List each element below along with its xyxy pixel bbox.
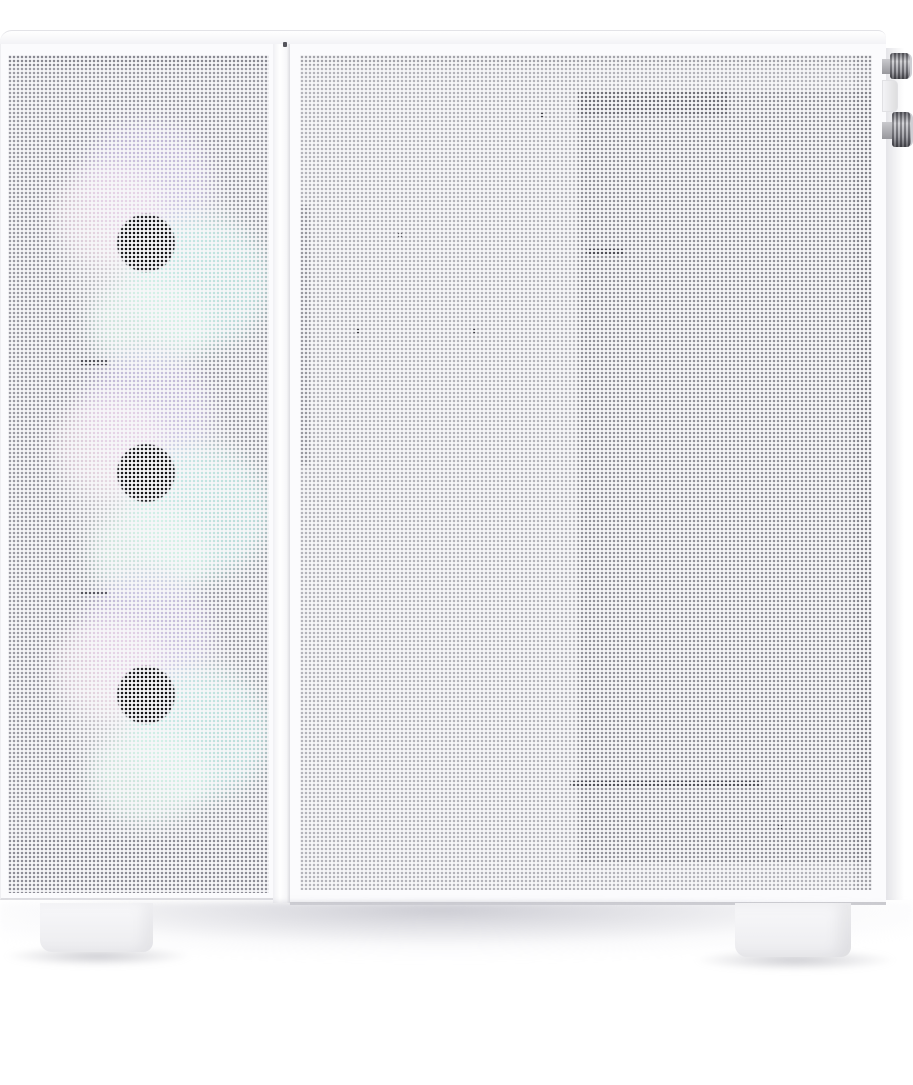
fan-glow-mint [88,506,210,602]
mesh-speck [473,329,477,333]
panel-latch-tab [882,80,898,112]
product-photo-white-mesh-pc-case [0,0,913,1085]
thumbscrew-lower [892,112,913,147]
rgb-fan-bottom [26,565,266,825]
side-mesh-grille [300,55,872,890]
fan-hub [117,214,175,272]
fan-glow-cyan [129,216,269,348]
case-foot-right [735,903,851,957]
mesh-edge-shading [8,838,269,893]
panel-seam-notch [283,42,287,47]
fan-hub [117,666,175,724]
fan-glow-lavender [81,121,213,241]
fan-glow-lavender [81,573,213,693]
interior-shelf-line [570,781,762,786]
mesh-speck [398,233,402,237]
mesh-edge-shading [300,205,310,465]
case-right-edge-shadow [886,48,904,900]
panel-seam [273,44,290,903]
thumbscrew-upper [890,53,912,79]
front-mesh-grille [8,55,269,893]
fan-glow-pink [54,395,166,495]
case-front-panel [0,44,273,900]
fan-glow-pink [54,165,166,265]
mesh-speck [586,249,624,254]
rgb-fan-top [26,113,266,373]
interior-shadow-edge [578,90,728,116]
fan-glow-mint [88,728,210,824]
fan-blade-halo [36,133,256,353]
mesh-speck [356,329,360,333]
fan-blade-halo [36,585,256,805]
fan-glow-mint [88,276,210,372]
interior-shadow [578,90,872,863]
fan-blade-halo [36,363,256,583]
mesh-edge-shading [300,55,872,65]
case-side-panel [290,44,886,905]
fan-glow-cyan [129,668,269,800]
mesh-edge-shading [854,55,872,890]
case-foot-left [40,903,153,952]
fan-glow-cyan [129,446,269,578]
mesh-speck [540,113,544,117]
mesh-speck [778,825,782,829]
mesh-speck [79,590,107,595]
rgb-fan-middle [26,343,266,603]
fan-glow-lavender [81,351,213,471]
mesh-speck [79,360,109,365]
mesh-edge-shading [8,55,269,67]
case-top-face [0,30,886,45]
fan-glow-pink [54,617,166,717]
fan-hub [117,444,175,502]
